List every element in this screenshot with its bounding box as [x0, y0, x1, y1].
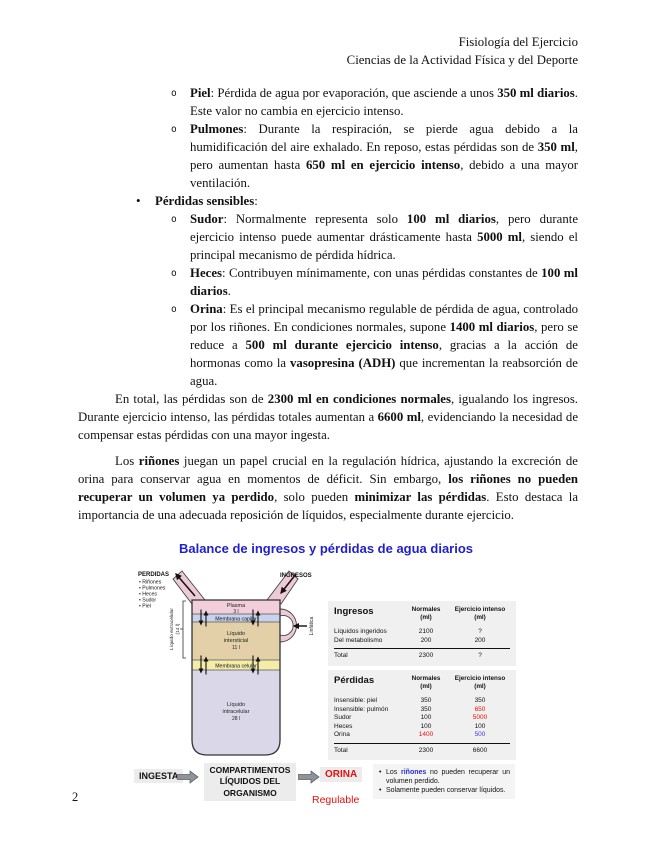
table-total-row: Total 2300 ? [334, 652, 510, 661]
body-text: o Piel: Pérdida de agua por evaporación,… [78, 84, 578, 524]
note-bullet-marker: • [379, 786, 381, 795]
orina-label: ORINA [320, 767, 362, 782]
table-row: Heces 100 100 [334, 723, 510, 732]
perdidas-item-piel: • Piel [139, 604, 151, 610]
list-item-sudor: o Sudor: Normalmente representa solo 100… [78, 210, 578, 264]
list-item-text: Pérdidas sensibles: [155, 194, 258, 208]
sub-bullet-marker: o [171, 121, 177, 139]
table-total-row: Total 2300 6600 [334, 747, 510, 756]
document-page: Fisiología del Ejercicio Ciencias de la … [0, 0, 655, 848]
capillary-membrane-label: Membrana capilar [215, 617, 257, 623]
list-item-text: Pulmones: Durante la respiración, se pie… [190, 122, 578, 190]
list-item-heces: o Heces: Contribuyen mínimamente, con un… [78, 264, 578, 300]
column-header-normales: Normales (ml) [402, 675, 450, 690]
note-bullet-marker: • [379, 768, 381, 777]
extracellular-volume: (14 l) [175, 623, 181, 634]
paragraph-totals: En total, las pérdidas son de 2300 ml en… [78, 390, 578, 444]
note-item: • Solamente pueden conservar líquidos. [378, 786, 510, 795]
flow-arrow-icon [298, 770, 320, 784]
note-text: Solamente pueden conservar líquidos. [386, 787, 505, 794]
header-line-2: Ciencias de la Actividad Física y del De… [347, 51, 578, 69]
list-item-piel: o Piel: Pérdida de agua por evaporación,… [78, 84, 578, 120]
figure-notes: • Los riñones no pueden recuperar un vol… [373, 764, 515, 799]
table-row: Del metabolismo 200 200 [334, 637, 510, 646]
intracellular-label-2: intracelular [223, 709, 250, 715]
perdidas-label: PERDIDAS [138, 572, 169, 578]
lymphatic-label: Linfática [309, 616, 315, 635]
list-item-pulmones: o Pulmones: Durante la respiración, se p… [78, 120, 578, 192]
intracellular-volume: 28 l [232, 716, 240, 722]
sub-bullet-marker: o [171, 211, 177, 229]
interstitial-label-2: intersticial [224, 638, 248, 644]
intracellular-label-1: Líquido [227, 702, 245, 708]
ingresos-table-title: Ingresos [334, 606, 402, 617]
column-header-normales: Normales (ml) [402, 606, 450, 621]
table-separator [334, 648, 510, 649]
sub-bullet-marker: o [171, 85, 177, 103]
cell-membrane-label: Membrana celular [215, 664, 257, 670]
list-item-perdidas-sensibles: • Pérdidas sensibles: [78, 192, 578, 210]
perdidas-table: Pérdidas Normales (ml) Ejercicio intenso… [328, 670, 516, 760]
ingresos-table-header: Ingresos Normales (ml) Ejercicio intenso… [334, 606, 510, 621]
figure-water-balance: Balance de ingresos y pérdidas de agua d… [130, 538, 600, 833]
perdidas-table-header: Pérdidas Normales (ml) Ejercicio intenso… [334, 675, 510, 690]
main-bullet-marker: • [136, 192, 141, 210]
page-number: 2 [72, 790, 78, 805]
ingesta-label: INGESTA [134, 769, 183, 783]
sub-bullet-marker: o [171, 301, 177, 319]
table-row: Sudor 100 5000 [334, 714, 510, 723]
list-item-orina: o Orina: Es el principal mecanismo regul… [78, 300, 578, 390]
list-item-text: Sudor: Normalmente representa solo 100 m… [190, 212, 578, 262]
list-item-text: Orina: Es el principal mecanismo regulab… [190, 302, 578, 388]
flow-arrow-icon [177, 770, 199, 784]
list-item-text: Heces: Contribuyen mínimamente, con unas… [190, 266, 578, 298]
ingresos-label: INGRESOS [280, 573, 312, 579]
regulable-label: Regulable [312, 794, 359, 806]
column-header-ejercicio-intenso: Ejercicio intenso (ml) [450, 606, 510, 621]
table-row: Insensible: pulmón 350 650 [334, 706, 510, 715]
header-line-1: Fisiología del Ejercicio [347, 33, 578, 51]
table-row: Líquidos ingeridos 2100 ? [334, 628, 510, 637]
table-separator [334, 743, 510, 744]
sub-bullet-marker: o [171, 265, 177, 283]
note-text: Los riñones no pueden recuperar un volum… [386, 769, 510, 785]
interstitial-label-1: Líquido [227, 631, 245, 637]
list-item-text: Piel: Pérdida de agua por evaporación, q… [190, 86, 578, 118]
note-item: • Los riñones no pueden recuperar un vol… [378, 768, 510, 786]
ingresos-table: Ingresos Normales (ml) Ejercicio intenso… [328, 601, 516, 666]
plasma-volume: 3 l [233, 609, 238, 615]
column-header-ejercicio-intenso: Ejercicio intenso (ml) [450, 675, 510, 690]
document-header: Fisiología del Ejercicio Ciencias de la … [347, 33, 578, 69]
perdidas-table-title: Pérdidas [334, 675, 402, 686]
table-row: Insensible: piel 350 350 [334, 697, 510, 706]
compartments-box: COMPARTIMENTOS LÍQUIDOS DEL ORGANISMO [204, 763, 296, 801]
paragraph-rinones: Los riñones juegan un papel crucial en l… [78, 452, 578, 524]
interstitial-volume: 11 l [232, 645, 240, 651]
table-row: Orina 1400 500 [334, 731, 510, 740]
extracellular-label: Líquido extracelular [169, 608, 175, 650]
